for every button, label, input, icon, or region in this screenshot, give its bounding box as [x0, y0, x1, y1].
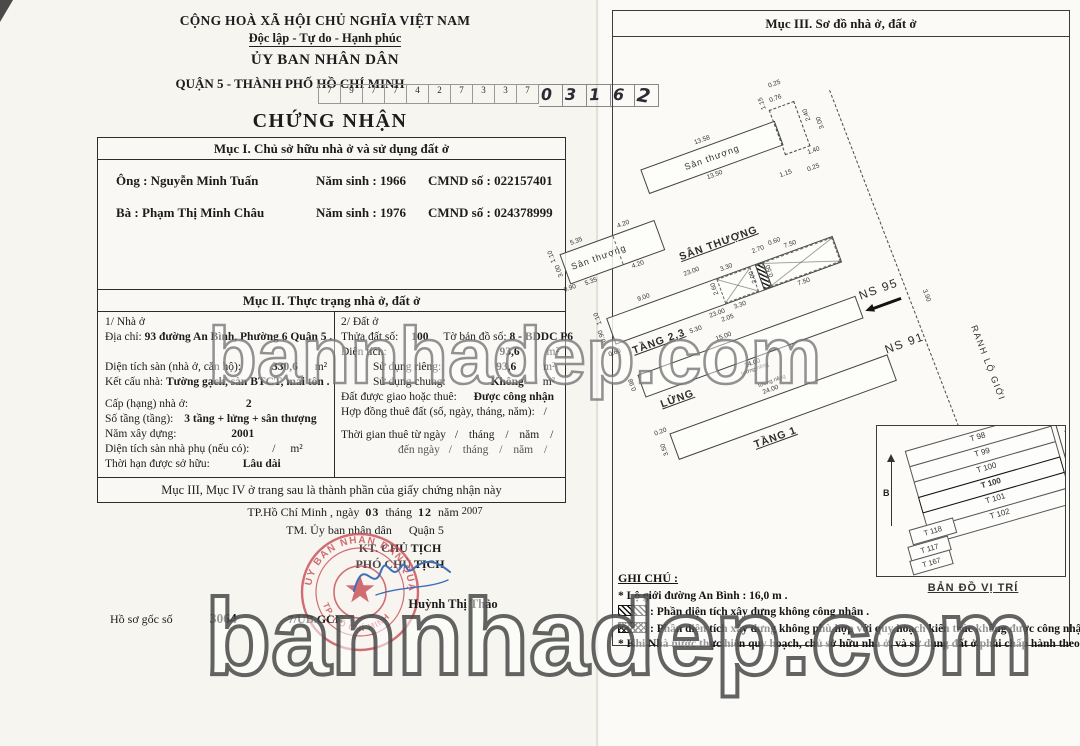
notes-title: GHI CHÚ :: [618, 571, 1068, 586]
owner2-birth: 1976: [380, 205, 406, 220]
national-title: CỘNG HOÀ XÃ HỘI CHỦ NGHĨA VIỆT NAM: [90, 13, 560, 29]
tenure-label: Thời hạn được sở hữu:: [105, 458, 210, 470]
crosshatch-legend-swatch: [618, 622, 647, 633]
owner1-birth-label: Năm sinh :: [316, 173, 380, 188]
parcel-group: T 98 T 99 T 100 T 100 T 101 T 102 T 118 …: [905, 425, 1066, 558]
dim-label: 1.15: [779, 168, 793, 179]
sign-place: TP.Hồ Chí Minh: [247, 505, 327, 519]
plan-page-title: Mục III. Sơ đồ nhà ở, đất ở: [613, 11, 1069, 37]
file-suffix: 7/UB.GCN: [288, 612, 344, 626]
aux-label: Diện tích sàn nhà phụ (nếu có):: [105, 443, 249, 455]
addr-value: 93 đường An Bình, Phường 6 Quận 5 .: [145, 331, 333, 343]
land-heading: 2/ Đất ở: [341, 316, 378, 328]
serial-cell: 2: [429, 84, 451, 104]
dim-label: 0.98: [627, 378, 638, 392]
addr-label: Địa chỉ:: [105, 331, 142, 343]
serial-cell: 7: [517, 84, 539, 104]
dim-label: 3.30: [733, 300, 747, 311]
file-label: Hồ sơ gốc số: [110, 612, 173, 626]
serial-cell-handwritten: 0: [539, 84, 563, 107]
aux-value: /: [272, 443, 275, 455]
year-value: 2001: [231, 428, 254, 440]
sign-month: 12: [418, 505, 432, 519]
serial-cell: 7: [385, 84, 407, 104]
section2-title: Mục II. Thực trạng nhà ở, đất ở: [98, 290, 565, 312]
location-map: B T 98 T 99 T 100 T 100 T 101 T 102 T 11…: [876, 425, 1066, 577]
dim-label: 7.50: [797, 277, 811, 288]
serial-cell: 7: [451, 84, 473, 104]
area-label: Diện tích:: [341, 346, 387, 358]
file-number-line: Hồ sơ gốc số 3064 7/UB.GCN: [110, 611, 343, 627]
granted-value: Được công nhận: [474, 391, 554, 403]
dim-label: 3.00: [815, 116, 826, 130]
lease-to-label: đến ngày: [398, 444, 440, 456]
structure-label: Kết cấu nhà:: [105, 376, 163, 388]
grade-value: 2: [246, 398, 252, 410]
place-date-line: TP.Hồ Chí Minh , ngày 03 tháng 12 năm 20…: [200, 505, 530, 520]
floor-area-unit: m²: [315, 361, 327, 373]
area-value: 93,6: [500, 346, 520, 358]
mapsheet-label: Tờ bản đồ số:: [443, 331, 506, 343]
strip-terrace-small: Sân thượng: [559, 220, 665, 285]
serial-number-boxes: 7 9 7 7 4 2 7 3 3 7 0 3 1 6 2: [318, 84, 659, 107]
serial-cell: 3: [473, 84, 495, 104]
shared-unit: m²: [543, 376, 555, 388]
dim-label: 3.50: [659, 442, 670, 456]
lease-label: Hợp đồng thuê đất (số, ngày, tháng, năm)…: [341, 406, 535, 418]
aux-unit: m²: [290, 443, 302, 455]
owner2-birth-label: Năm sinh :: [316, 205, 380, 220]
hatch-legend-swatch: [618, 605, 647, 616]
signer-name: Huỳnh Thị Thảo: [388, 597, 518, 612]
sign-year: 2007: [462, 506, 483, 517]
owner1-id: 022157401: [494, 173, 553, 188]
north-arrow-line: [891, 460, 892, 526]
dim-label: 0.20: [653, 427, 667, 438]
dim-label: 0.90: [597, 329, 608, 343]
tenure-value: Lâu dài: [243, 458, 281, 470]
owner2-id-label: CMND số :: [428, 205, 494, 220]
storeys-value: 3 tầng + lửng + sân thượng: [184, 413, 316, 425]
scanned-certificate-document: CỘNG HOÀ XÃ HỘI CHỦ NGHĨA VIỆT NAM Độc l…: [0, 0, 1080, 746]
dim-label: 23.00: [683, 266, 701, 278]
lease-from-label: Thời gian thuê từ ngày: [341, 429, 446, 441]
issuer-title: ỦY BAN NHÂN DÂN: [90, 52, 560, 69]
serial-cell: 9: [341, 84, 363, 104]
owner1-name: Nguyễn Minh Tuấn: [151, 173, 259, 188]
private-unit: m²: [543, 361, 555, 373]
owner1-id-label: CMND số :: [428, 173, 494, 188]
owner2-role: Bà :: [116, 205, 142, 220]
dim-label: 1.40: [806, 145, 820, 156]
lease-value: /: [544, 406, 547, 418]
dim-label: 0.60: [608, 347, 622, 358]
dim-label: 0.25: [806, 162, 820, 173]
private-value: 93,6: [496, 361, 516, 373]
parcel-value: 100: [411, 331, 428, 343]
dim-label: 0.60: [767, 236, 781, 247]
note-line: * Lộ giới đường An Bình : 16,0 m .: [618, 590, 1068, 602]
serial-cell: 7: [363, 84, 385, 104]
terrace-small-label: Sân thượng: [561, 219, 670, 283]
document-title: CHỨNG NHẬN: [130, 110, 530, 133]
floor-area-value: 330,6: [272, 361, 298, 373]
area-unit: m²: [547, 346, 559, 358]
serial-cell: 7: [318, 84, 341, 104]
grade-label: Cấp (hạng) nhà ở:: [105, 398, 188, 410]
file-number: 3064: [210, 611, 237, 626]
section1-title: Mục I. Chủ sở hữu nhà ở và sử dụng đất ở: [98, 138, 565, 160]
section1-box: Mục I. Chủ sở hữu nhà ở và sử dụng đất ở…: [97, 137, 566, 290]
scan-corner-artifact: [0, 0, 13, 22]
floor-area-label: Diện tích sàn (nhà ở, căn hộ):: [105, 361, 241, 373]
serial-cell-handwritten: 3: [563, 84, 587, 107]
page-fold-line: [596, 0, 598, 746]
notes-block: GHI CHÚ : * Lộ giới đường An Bình : 16,0…: [618, 571, 1068, 650]
private-label: Sử dụng riêng:: [373, 361, 441, 373]
serial-cell-handwritten: 1: [587, 84, 611, 107]
note-line: * Khi Nhà nước thực hiện quy hoạch, chủ …: [618, 638, 1068, 650]
dim-label: 5.30: [689, 324, 703, 335]
owner1-birth: 1966: [380, 173, 406, 188]
column-divider: [334, 311, 335, 477]
section2-footer: Mục III, Mục IV ở trang sau là thành phầ…: [98, 477, 565, 502]
section2-box: Mục II. Thực trạng nhà ở, đất ở 1/ Nhà ở…: [97, 289, 566, 503]
owner2-name: Phạm Thị Minh Châu: [142, 205, 264, 220]
house-heading: 1/ Nhà ở: [105, 316, 145, 328]
serial-cell: 4: [407, 84, 429, 104]
mapsheet-value: 8 - BDDC P6: [509, 331, 573, 343]
dim-label: 2.40: [801, 108, 812, 122]
year-label: Năm xây dựng:: [105, 428, 176, 440]
shared-label: Sử dụng chung:: [373, 376, 446, 388]
note-line: : Phần diện tích xây dựng không phù hợp …: [618, 622, 1068, 635]
sign-day: 03: [365, 505, 379, 519]
granted-label: Đất được giao hoặc thuê:: [341, 391, 457, 403]
serial-cell: 3: [495, 84, 517, 104]
dim-label: 2.70: [751, 244, 765, 255]
storeys-label: Số tầng (tầng):: [105, 413, 173, 425]
dim-label: 1.10: [593, 311, 604, 325]
owner1-role: Ông :: [116, 173, 151, 188]
north-label: B: [883, 488, 890, 498]
terrace-section-title: SÂN THƯỢNG: [678, 224, 760, 263]
shared-value: Không: [491, 376, 524, 388]
national-motto: Độc lập - Tự do - Hạnh phúc: [90, 31, 560, 46]
parcel-label: Thửa đất số:: [341, 331, 398, 343]
note-line: : Phần diện tích xây dựng không công nhậ…: [618, 605, 1068, 618]
structure-value: Tường gạch, sàn BTCT, mái tôn .: [166, 376, 330, 388]
